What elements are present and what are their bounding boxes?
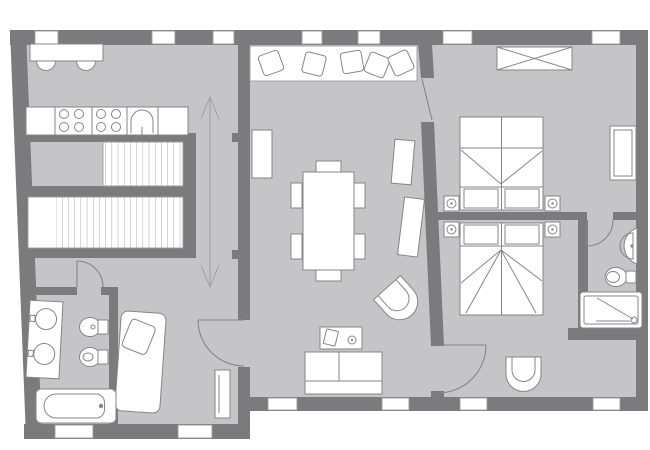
- window: [460, 398, 487, 410]
- window: [213, 31, 234, 44]
- window: [35, 31, 58, 44]
- wall-bathroom2-bottom: [568, 328, 648, 340]
- wall-top: [10, 30, 648, 45]
- dining-chair: [354, 183, 365, 208]
- wall-bottom-main: [250, 397, 648, 411]
- wall-pilaster-a: [232, 133, 238, 142]
- dining-chair: [316, 270, 341, 281]
- wall-bedroom-separator-right: [613, 212, 648, 220]
- nightstand-lamp: [545, 196, 560, 211]
- window: [268, 398, 297, 410]
- window: [443, 31, 472, 44]
- wall-bedroom-separator-left: [436, 212, 587, 220]
- wall-pilaster-b: [232, 250, 238, 259]
- wall-corridor-east-upper: [238, 44, 250, 320]
- shower-tray: [580, 292, 642, 328]
- wall-corridor-east-lower: [238, 367, 250, 438]
- bidet: [80, 348, 109, 367]
- double-bed: [460, 117, 543, 210]
- dining-chair: [291, 234, 302, 259]
- dining-table: [303, 172, 354, 270]
- armchair: [506, 357, 541, 392]
- nightstand-lamp: [444, 196, 459, 211]
- radiator: [252, 130, 272, 178]
- pillow: [464, 189, 498, 208]
- window: [152, 31, 175, 44]
- lounge-chair: [301, 51, 326, 76]
- kitchen-counter: [26, 107, 188, 135]
- stair-treads-upper: [103, 142, 183, 186]
- balcony: [250, 46, 417, 81]
- double-bed: [460, 223, 543, 315]
- sofa: [305, 352, 382, 394]
- stair-treads-lower: [56, 197, 183, 248]
- wall-living-bedroom2-stub: [431, 391, 444, 411]
- radiator: [610, 126, 636, 180]
- window: [55, 425, 93, 438]
- bathtub: [36, 389, 116, 423]
- dining-chair: [354, 234, 365, 259]
- double-washbasin-vanity: [26, 300, 63, 379]
- window: [358, 31, 380, 44]
- wall-stairs-mid: [24, 186, 196, 197]
- floor-plan-canvas: [0, 0, 650, 450]
- single-bed: [115, 311, 167, 414]
- nightstand-lamp: [444, 222, 459, 237]
- wall-stairs-bottom: [24, 248, 196, 258]
- coffee-table: [320, 327, 362, 349]
- nightstand-lamp: [545, 222, 560, 237]
- wardrobe: [497, 47, 572, 70]
- wall-bathroom1-top-left: [26, 287, 77, 295]
- window: [178, 425, 212, 438]
- pillow: [464, 225, 498, 244]
- dining-chair: [316, 161, 341, 172]
- radiator: [391, 139, 415, 185]
- breakfast-table: [30, 44, 103, 61]
- floor-plan-page: [0, 0, 650, 450]
- wall-stairs-right: [183, 133, 196, 258]
- window: [593, 398, 620, 410]
- pillow: [505, 225, 539, 244]
- pillow: [505, 189, 539, 208]
- window: [302, 31, 322, 44]
- window: [592, 31, 620, 44]
- toilet: [80, 318, 109, 337]
- lounge-chair: [340, 50, 364, 74]
- dining-chair: [291, 183, 302, 208]
- window: [382, 398, 409, 410]
- radiator: [215, 370, 230, 418]
